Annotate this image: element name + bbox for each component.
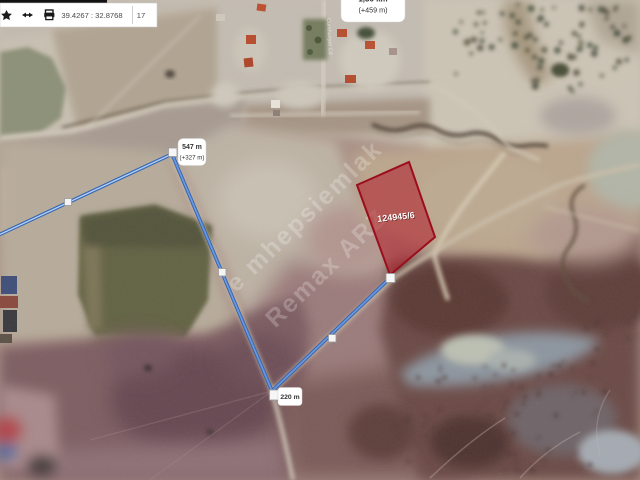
svg-text:39.4267 : 32.8768: 39.4267 : 32.8768 [61, 11, 122, 20]
svg-text:220 m: 220 m [280, 394, 299, 401]
svg-text:(+327 m): (+327 m) [180, 155, 205, 162]
svg-text:(+459 m): (+459 m) [359, 6, 388, 15]
svg-text:547 m: 547 m [182, 144, 202, 151]
svg-text:17: 17 [137, 11, 145, 20]
svg-text:1,36 km: 1,36 km [358, 0, 387, 4]
